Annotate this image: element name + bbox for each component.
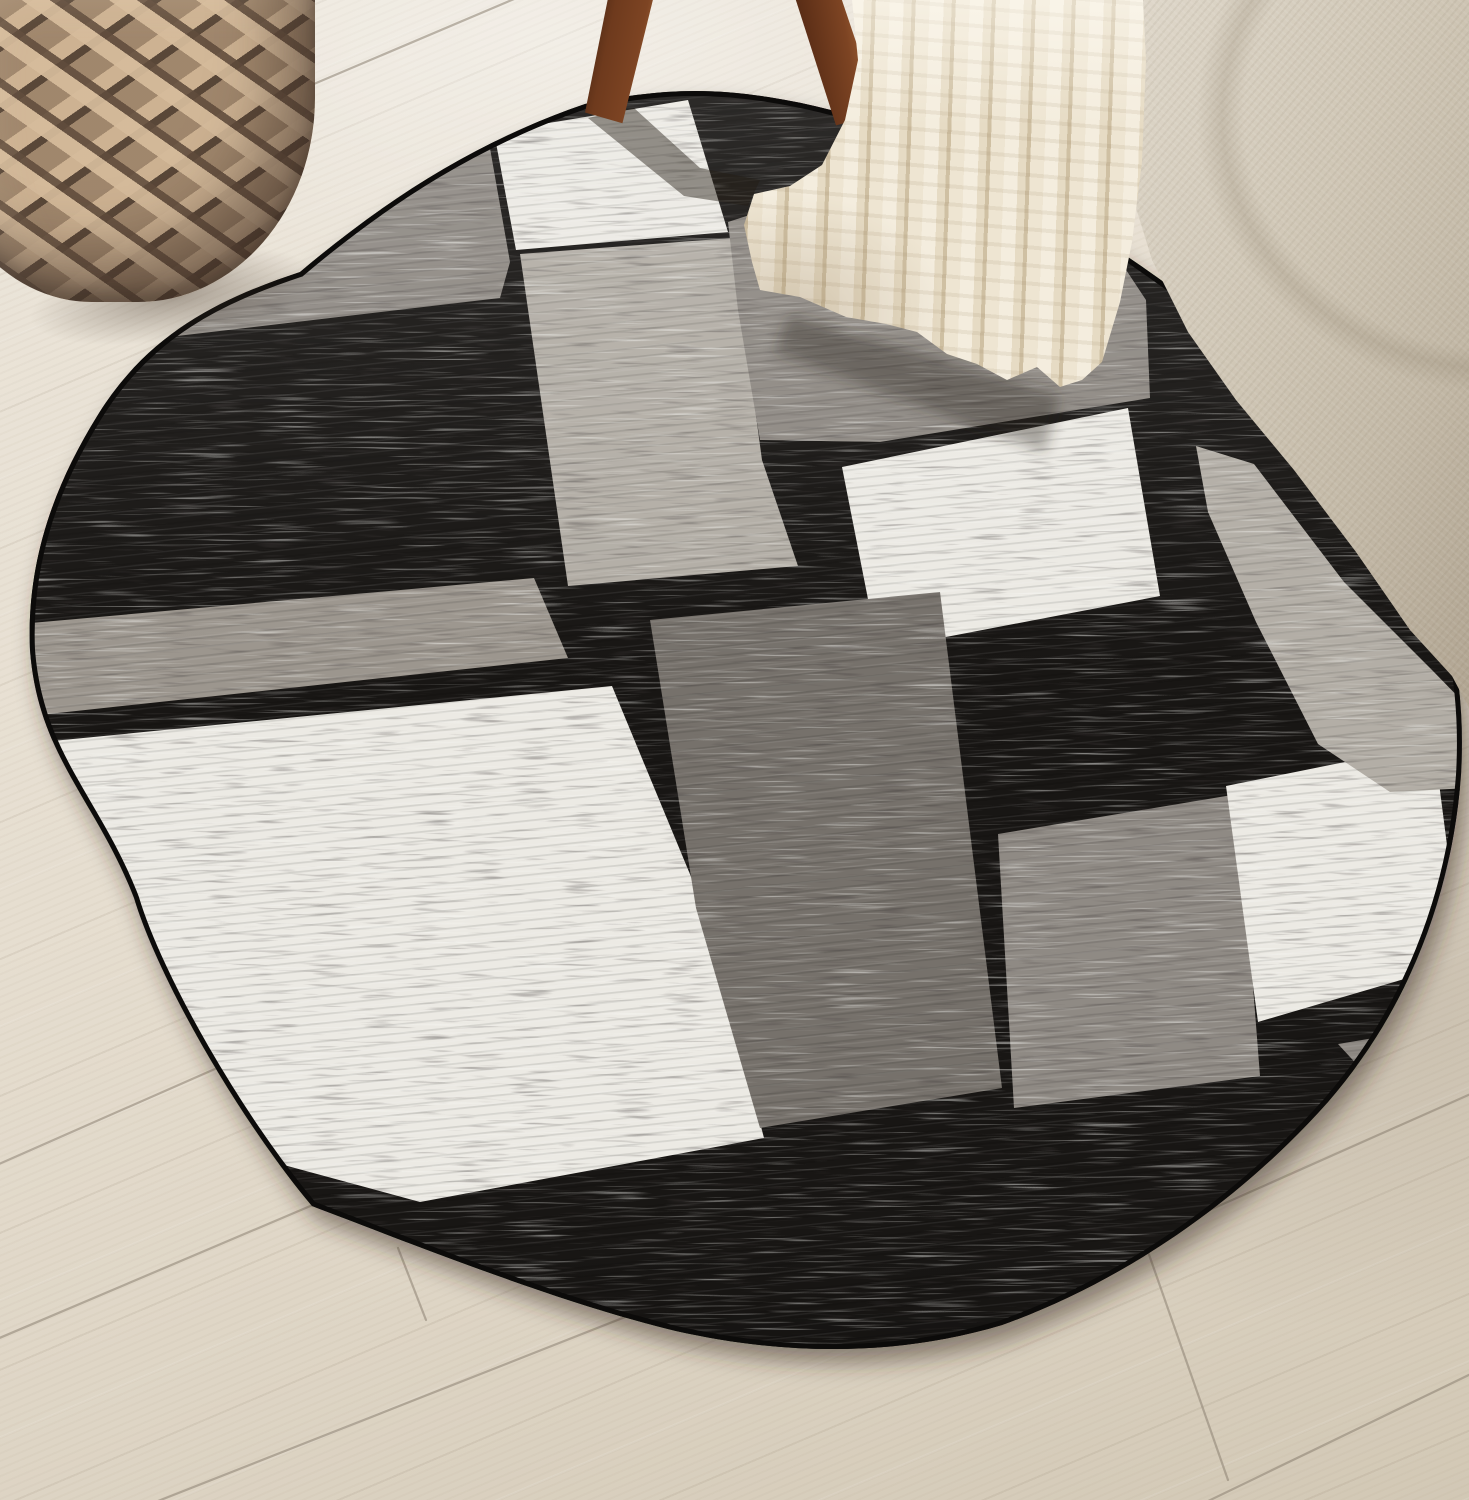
scene — [0, 0, 1469, 1500]
